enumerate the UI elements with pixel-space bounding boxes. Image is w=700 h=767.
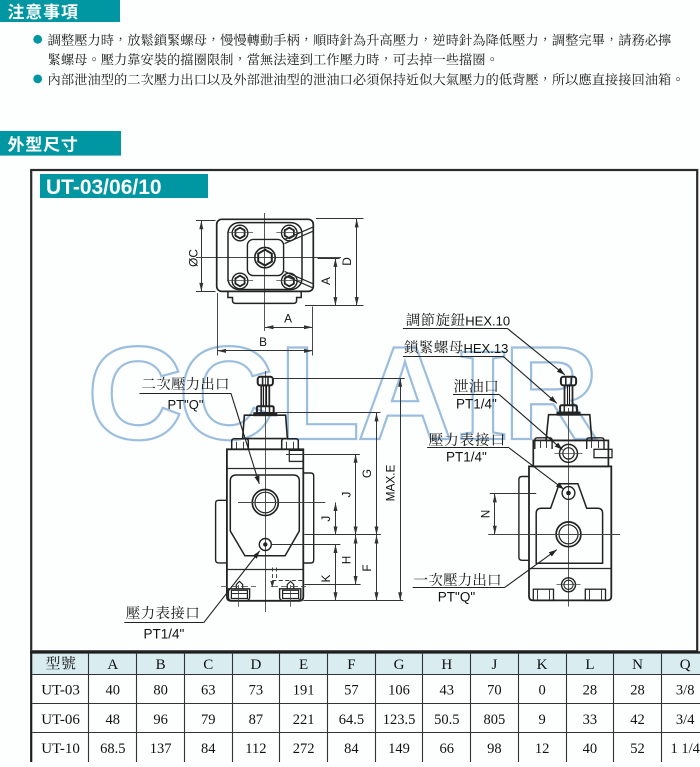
svg-text:PT1/4": PT1/4" (446, 449, 487, 464)
svg-text:106: 106 (388, 683, 410, 699)
svg-text:64.5: 64.5 (339, 712, 364, 728)
svg-text:28: 28 (583, 683, 598, 699)
svg-text:UT-10: UT-10 (41, 741, 80, 757)
svg-text:149: 149 (388, 741, 410, 757)
svg-text:73: 73 (249, 683, 264, 699)
svg-text:K: K (537, 657, 548, 673)
svg-text:F: F (360, 564, 374, 571)
svg-text:A: A (284, 312, 292, 326)
svg-text:H: H (441, 657, 452, 673)
svg-text:12: 12 (535, 741, 550, 757)
svg-text:0: 0 (538, 683, 545, 699)
svg-text:N: N (478, 510, 492, 519)
svg-text:J: J (491, 657, 497, 673)
svg-text:57: 57 (344, 683, 359, 699)
svg-text:80: 80 (153, 683, 168, 699)
svg-text:K: K (319, 574, 333, 582)
svg-text:B: B (156, 657, 166, 673)
svg-text:70: 70 (487, 683, 502, 699)
svg-text:123.5: 123.5 (383, 712, 416, 728)
svg-text:UT-03: UT-03 (41, 683, 80, 699)
svg-text:C: C (203, 657, 213, 673)
svg-text:28: 28 (630, 683, 645, 699)
svg-text:R: R (503, 320, 599, 468)
svg-text:3/4: 3/4 (676, 712, 695, 728)
svg-text:L: L (279, 320, 360, 468)
svg-text:A: A (319, 277, 333, 285)
svg-text:40: 40 (106, 683, 121, 699)
svg-text:33: 33 (583, 712, 598, 728)
svg-text:J: J (340, 491, 354, 497)
svg-text:J: J (319, 516, 333, 522)
svg-text:1 1/4: 1 1/4 (670, 741, 700, 757)
svg-text:112: 112 (245, 741, 266, 757)
svg-text:PT"Q": PT"Q" (168, 397, 204, 412)
svg-text:805: 805 (484, 712, 506, 728)
svg-text:HEX.10: HEX.10 (465, 314, 510, 329)
svg-text:87: 87 (249, 712, 264, 728)
svg-text:68.5: 68.5 (100, 741, 125, 757)
svg-text:137: 137 (150, 741, 172, 757)
svg-text:H: H (340, 556, 354, 565)
svg-text:272: 272 (293, 741, 315, 757)
svg-text:HEX.13: HEX.13 (464, 341, 509, 356)
svg-text:3/8: 3/8 (676, 683, 695, 699)
svg-text:L: L (585, 657, 594, 673)
svg-text:Q: Q (680, 657, 691, 673)
svg-text:9: 9 (538, 712, 545, 728)
svg-text:G: G (394, 657, 405, 673)
svg-text:63: 63 (201, 683, 216, 699)
svg-text:F: F (347, 657, 355, 673)
svg-text:N: N (632, 657, 643, 673)
svg-text:43: 43 (440, 683, 455, 699)
svg-text:D: D (250, 657, 261, 673)
svg-text:40: 40 (583, 741, 598, 757)
svg-text:UT-06: UT-06 (41, 712, 80, 728)
svg-text:PT"Q": PT"Q" (438, 589, 476, 604)
svg-text:42: 42 (630, 712, 645, 728)
svg-text:A: A (357, 320, 453, 468)
svg-text:E: E (299, 657, 308, 673)
svg-text:ØC: ØC (187, 249, 201, 267)
svg-text:MAX.E: MAX.E (383, 465, 397, 502)
svg-text:PT1/4": PT1/4" (456, 396, 497, 411)
svg-text:52: 52 (630, 741, 645, 757)
svg-text:B: B (259, 335, 267, 349)
svg-text:A: A (107, 657, 118, 673)
svg-text:84: 84 (201, 741, 216, 757)
svg-text:66: 66 (440, 741, 455, 757)
svg-text:191: 191 (293, 683, 315, 699)
svg-text:84: 84 (344, 741, 359, 757)
svg-text:UT-03/06/10: UT-03/06/10 (46, 176, 162, 199)
svg-text:D: D (340, 257, 354, 266)
svg-text:50.5: 50.5 (434, 712, 459, 728)
svg-text:98: 98 (487, 741, 502, 757)
svg-text:79: 79 (201, 712, 216, 728)
svg-text:96: 96 (153, 712, 168, 728)
svg-text:PT1/4": PT1/4" (144, 627, 185, 642)
svg-text:G: G (360, 469, 374, 478)
svg-text:221: 221 (293, 712, 315, 728)
svg-text:48: 48 (106, 712, 121, 728)
